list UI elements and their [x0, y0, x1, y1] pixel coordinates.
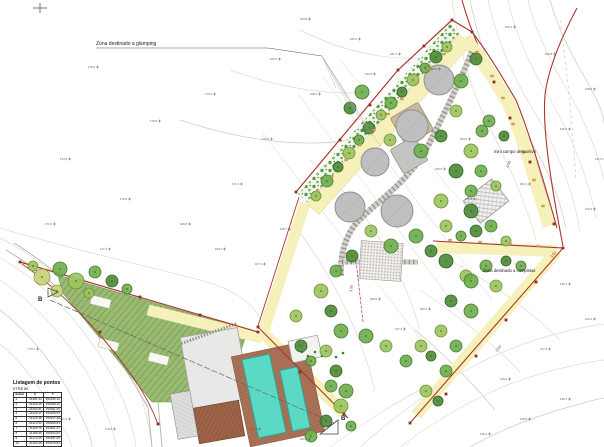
spot-elevation-tick [113, 428, 116, 431]
survey-marker [139, 296, 142, 299]
tree-center-dot [505, 240, 507, 242]
spot-elevation-tick [403, 328, 406, 331]
spot-elevation-tick [488, 433, 491, 436]
spot-elevation-tick [270, 138, 273, 141]
tree-center-dot [440, 200, 442, 202]
survey-marker [451, 19, 454, 22]
tree-center-dot [385, 345, 387, 347]
tree-center-dot [480, 170, 482, 172]
path-stake [443, 53, 446, 55]
tree-center-dot [470, 280, 472, 282]
spot-elevation-value: 166.9 [270, 57, 277, 61]
tree-center-dot [75, 280, 77, 282]
spot-elevation-value: 169.1 [215, 247, 222, 251]
path-stake [542, 205, 545, 207]
spot-elevation-value: 147.5 [595, 157, 602, 161]
shrub-dot [342, 352, 345, 355]
spot-elevation-tick [68, 158, 71, 161]
spot-elevation-value: 153.8 [465, 197, 472, 201]
spot-elevation-value: 173.5 [60, 157, 67, 161]
survey-marker [157, 423, 160, 426]
spot-elevation-tick [593, 208, 596, 211]
spot-elevation-tick [318, 93, 321, 96]
tree-center-dot [340, 330, 342, 332]
shrub-dot [314, 351, 317, 354]
points-table-body: 1-41281.34153246.122-41269.45153238.203-… [14, 397, 62, 446]
tree-center-dot [495, 185, 497, 187]
spot-elevation-tick [373, 73, 376, 76]
tree-center-dot [470, 190, 472, 192]
spot-elevation-value: 170.2 [120, 197, 127, 201]
spot-elevation-tick [398, 53, 401, 56]
tree-center-dot [430, 250, 432, 252]
tree-center-dot [300, 345, 302, 347]
spot-elevation-value: 161.2 [300, 437, 307, 441]
spot-elevation-value: 167.3 [255, 262, 262, 266]
survey-marker [295, 191, 298, 194]
contour-line [550, 0, 604, 124]
tree-center-dot [390, 245, 392, 247]
survey-marker [409, 422, 412, 425]
spot-elevation-value: 148.3 [560, 282, 567, 286]
path-stake [345, 159, 348, 161]
spot-elevation-value: 178.2 [88, 65, 95, 69]
survey-marker [535, 281, 538, 284]
survey-marker [397, 69, 400, 72]
tree-center-dot [59, 268, 61, 270]
spot-elevation-tick [240, 183, 243, 186]
survey-marker [475, 355, 478, 358]
spot-elevation-value: 146.9 [585, 207, 592, 211]
spot-elevation-tick [378, 298, 381, 301]
spot-elevation-tick [158, 120, 161, 123]
tree-center-dot [345, 390, 347, 392]
tree-center-dot [337, 166, 339, 168]
spot-elevation-value: 174.6 [45, 222, 52, 226]
tree-center-dot [424, 67, 426, 69]
tree-center-dot [445, 260, 447, 262]
points-table-cell: 10 [14, 441, 27, 446]
spot-elevation-value: 171.3 [232, 182, 239, 186]
tree-center-dot [412, 79, 414, 81]
label-glamping-zone: Zona destinado a glamping [96, 41, 157, 47]
spot-elevation-tick [443, 168, 446, 171]
tree-center-dot [349, 107, 351, 109]
survey-marker [339, 139, 342, 142]
spot-elevation-value: 148.1 [480, 432, 487, 436]
tree-center-dot [495, 285, 497, 287]
spot-elevation-tick [68, 418, 71, 421]
tree-center-dot [485, 265, 487, 267]
tree-center-dot [389, 139, 391, 141]
spot-elevation-tick [468, 138, 471, 141]
path-stake [479, 241, 482, 243]
spot-elevation-value: 161.7 [390, 52, 397, 56]
contour-line [300, 30, 420, 58]
spot-elevation-tick [593, 88, 596, 91]
survey-marker [369, 104, 372, 107]
tree-center-dot [370, 230, 372, 232]
path-stake [317, 191, 320, 193]
tree-center-dot [348, 152, 350, 154]
tree-center-dot [401, 91, 403, 93]
tree-center-dot [390, 102, 392, 104]
tree-center-dot [365, 335, 367, 337]
spot-elevation-value: 147.8 [540, 347, 547, 351]
spot-elevation-value: 149.4 [500, 377, 507, 381]
spot-elevation-value: 162.8 [365, 72, 372, 76]
tree-center-dot [430, 355, 432, 357]
tree-center-dot [455, 110, 457, 112]
spot-elevation-tick [213, 93, 216, 96]
tree-center-dot [405, 360, 407, 362]
tree-center-dot [505, 260, 507, 262]
path-stake [331, 175, 334, 177]
tree-center-dot [445, 370, 447, 372]
tree-center-dot [437, 400, 439, 402]
survey-marker [562, 247, 565, 250]
tree-center-dot [310, 435, 312, 437]
survey-marker [299, 371, 302, 374]
tree-center-dot [358, 139, 360, 141]
tree-center-dot [330, 385, 332, 387]
path-stake [476, 51, 479, 53]
spot-elevation-tick [223, 248, 226, 251]
spot-elevation-tick [358, 38, 361, 41]
spot-elevation-tick [53, 223, 56, 226]
spot-elevation-value: 154.3 [460, 137, 467, 141]
tree-center-dot [325, 420, 327, 422]
contour-line [528, 0, 604, 180]
tree-center-dot [425, 390, 427, 392]
survey-marker [257, 326, 260, 329]
points-table-cell: -41160.48 [26, 441, 44, 446]
tree-center-dot [380, 114, 382, 116]
tree-center-dot [335, 370, 337, 372]
survey-marker [199, 314, 202, 317]
spot-elevation-value: 151.6 [520, 182, 527, 186]
tree-center-dot [503, 135, 505, 137]
tree-center-dot [326, 180, 328, 182]
tree-center-dot [435, 56, 437, 58]
path-stake [533, 179, 536, 181]
path-width-label: 3.00 [495, 345, 503, 353]
spot-elevation-value: 163.4 [250, 427, 257, 431]
tree-center-dot [351, 255, 353, 257]
path-width-label: 3.50 [349, 285, 354, 292]
spot-elevation-tick [428, 308, 431, 311]
spot-elevation-value: 158.9 [430, 67, 437, 71]
survey-marker [509, 117, 512, 120]
section-marker-b: B [38, 297, 43, 303]
path-stake [359, 144, 362, 146]
spot-elevation-value: 175.1 [28, 347, 35, 351]
shrub-dot [335, 356, 338, 359]
label-sports-field: mini campo desportivo [494, 149, 537, 154]
spot-elevation-tick [508, 378, 511, 381]
spot-elevation-value: 145.7 [560, 397, 567, 401]
tree-center-dot [335, 270, 337, 272]
tree-center-dot [415, 235, 417, 237]
tree-center-dot [475, 58, 477, 60]
spot-elevation-tick [278, 58, 281, 61]
path-stake [512, 123, 515, 125]
path-stake [387, 113, 390, 115]
spot-elevation-value: 165.2 [350, 37, 357, 41]
label-campers-zone: Zona destinado a campistas [483, 268, 535, 273]
spot-elevation-value: 169.8 [180, 222, 187, 226]
tree-center-dot [488, 120, 490, 122]
survey-marker [471, 31, 474, 34]
tree-center-dot [111, 280, 113, 282]
contour-line [470, 398, 604, 447]
points-table-cell: 153179.84 [44, 441, 62, 446]
tree-center-dot [455, 345, 457, 347]
spot-elevation-value: 168.4 [310, 92, 317, 96]
section-marker-b-prime: B' [341, 416, 347, 422]
tree-center-dot [475, 230, 477, 232]
tree-center-dot [440, 330, 442, 332]
spot-elevation-value: 158.6 [370, 297, 377, 301]
spot-elevation-value: 172.6 [262, 137, 269, 141]
survey-marker [505, 319, 508, 322]
points-listing-subtitle: ETRS 89 [13, 387, 62, 391]
tree-center-dot [361, 91, 363, 93]
spot-elevation-tick [593, 318, 596, 321]
spot-elevation-tick [96, 66, 99, 69]
tree-center-dot [88, 292, 90, 294]
tree-center-dot [470, 210, 472, 212]
tree-center-dot [520, 265, 522, 267]
tree-center-dot [350, 425, 352, 427]
tree-center-dot [446, 46, 448, 48]
path-stake [537, 245, 540, 247]
tree-center-dot [490, 225, 492, 227]
tree-center-dot [310, 360, 312, 362]
spot-elevation-value: 168.7 [280, 227, 287, 231]
points-table-row: 10-41160.48153179.84 [14, 441, 62, 446]
survey-marker [99, 331, 102, 334]
spot-elevation-tick [568, 283, 571, 286]
datum-cross-icon [33, 3, 47, 13]
tree-center-dot [460, 80, 462, 82]
path-stake [491, 75, 494, 77]
tree-center-dot [320, 290, 322, 292]
spot-elevation-value: 155.6 [435, 167, 442, 171]
tree-center-dot [420, 345, 422, 347]
tree-center-dot [41, 276, 43, 278]
spot-elevation-value: 146.2 [585, 317, 592, 321]
spot-elevation-value: 148.6 [585, 87, 592, 91]
contour-line [230, 70, 372, 93]
spot-elevation-value: 172.4 [100, 247, 107, 251]
survey-marker [257, 331, 260, 334]
spot-elevation-value: 152.4 [505, 25, 512, 29]
tree-center-dot [420, 150, 422, 152]
tree-center-dot [460, 235, 462, 237]
tree-center-dot [325, 350, 327, 352]
path-stake [509, 243, 512, 245]
tree-center-dot [455, 170, 457, 172]
tree-center-dot [32, 265, 34, 267]
spot-elevation-value: 175.4 [205, 92, 212, 96]
path-stake [401, 98, 404, 100]
points-listing-title: Listagem de pontos [13, 381, 62, 387]
path-stake [415, 83, 418, 85]
spot-elevation-value: 163.8 [300, 17, 307, 21]
survey-marker [19, 261, 22, 264]
points-listing: Listagem de pontos ETRS 89 ÍndiceXY 1-41… [13, 381, 62, 447]
tree-center-dot [440, 135, 442, 137]
tree-center-dot [94, 271, 96, 273]
survey-marker [445, 393, 448, 396]
tree-center-dot [470, 310, 472, 312]
path-stake [502, 97, 505, 99]
tree-center-dot [470, 150, 472, 152]
spot-elevation-tick [568, 128, 571, 131]
survey-marker [423, 45, 426, 48]
spot-elevation-value: 149.2 [560, 127, 567, 131]
tree-center-dot [450, 300, 452, 302]
spot-elevation-value: 157.4 [395, 327, 402, 331]
spot-elevation-tick [568, 398, 571, 401]
spot-elevation-tick [548, 348, 551, 351]
spot-elevation-tick [128, 198, 131, 201]
site-plan-canvas: B B' Zona destinado a glamping mini camp… [0, 0, 604, 447]
path-stake [449, 239, 452, 241]
points-table: ÍndiceXY 1-41281.34153246.122-41269.4515… [13, 392, 62, 447]
tree-center-dot [315, 195, 317, 197]
spot-elevation-tick [308, 18, 311, 21]
spot-elevation-tick [263, 263, 266, 266]
tree-center-dot [445, 225, 447, 227]
tree-center-dot [330, 310, 332, 312]
tree-center-dot [126, 288, 128, 290]
spot-elevation-value: 146.8 [520, 417, 527, 421]
spot-elevation-value: 176.5 [105, 427, 112, 431]
spot-elevation-value: 156.2 [420, 307, 427, 311]
spot-elevation-tick [108, 248, 111, 251]
tree-center-dot [295, 315, 297, 317]
spot-elevation-value: 176.8 [150, 119, 157, 123]
path-stake [373, 129, 376, 131]
site-plan-sheet: B B' Zona destinado a glamping mini camp… [0, 0, 604, 447]
survey-marker [553, 223, 556, 226]
tree-center-dot [340, 405, 342, 407]
spot-elevation-value: 150.8 [545, 52, 552, 56]
survey-marker [493, 81, 496, 84]
spot-elevation-tick [188, 223, 191, 226]
tree-center-dot [481, 130, 483, 132]
survey-marker [529, 161, 532, 164]
